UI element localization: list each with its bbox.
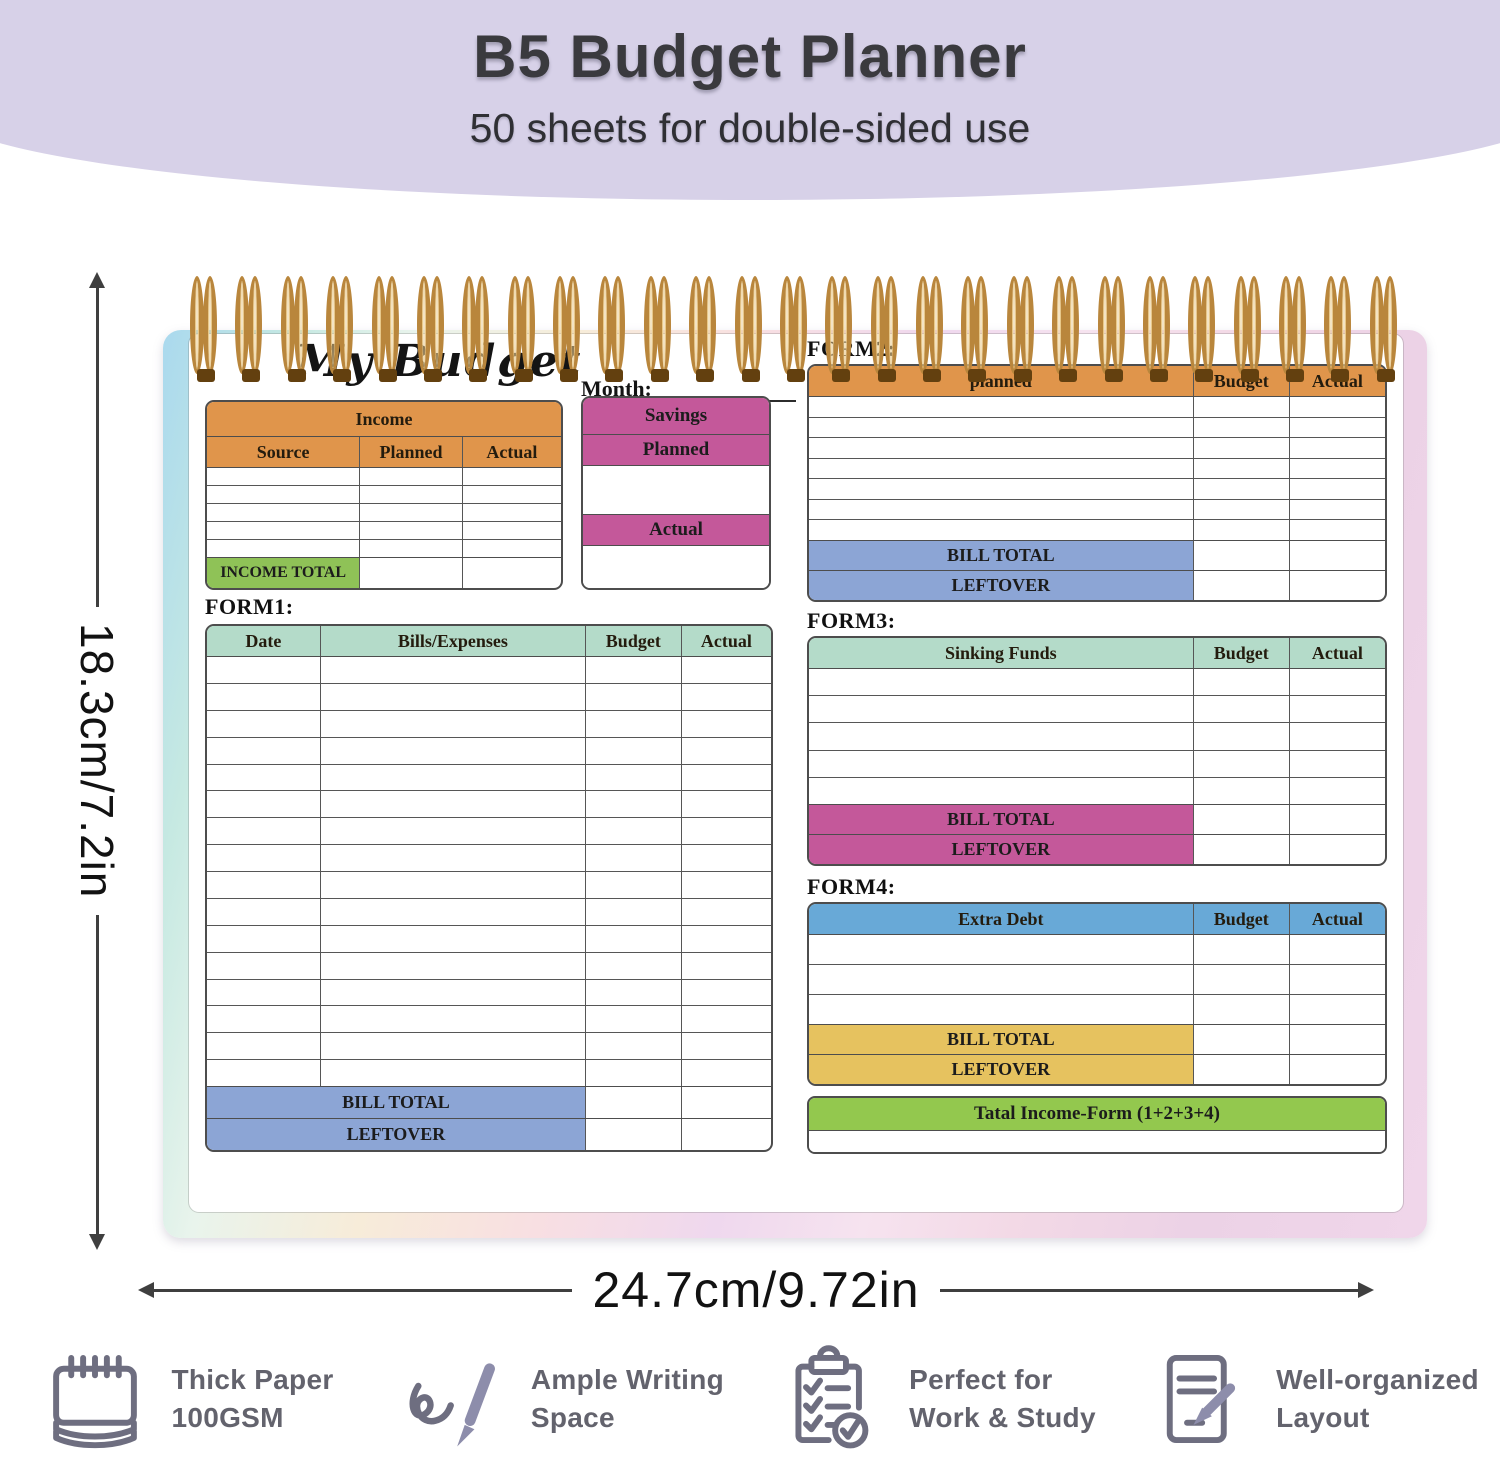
table-cell	[462, 486, 561, 503]
spiral-wire	[735, 276, 749, 374]
table-row	[207, 503, 561, 521]
table-cell	[359, 522, 462, 539]
savings-actual-label: Actual	[583, 514, 769, 545]
table-row	[207, 952, 771, 979]
spiral-ring	[507, 276, 539, 384]
width-dimension: 24.7cm/9.72in	[138, 1258, 1374, 1322]
spiral-wire	[385, 276, 399, 374]
product-image: B5 Budget Planner 50 sheets for double-s…	[0, 0, 1500, 1466]
spiral-wire	[462, 276, 476, 374]
table-cell	[320, 899, 585, 925]
table-cell	[462, 504, 561, 521]
table-row	[207, 764, 771, 791]
table-cell	[1289, 438, 1385, 458]
spiral-ring	[461, 276, 493, 384]
table-cell	[320, 1006, 585, 1032]
table-cell	[1289, 520, 1385, 540]
table-row	[207, 817, 771, 844]
dimension-line	[940, 1289, 1358, 1292]
table-cell	[1289, 965, 1385, 994]
column-header: Actual	[681, 626, 771, 656]
table-cell	[1289, 1025, 1385, 1054]
table-cell	[320, 684, 585, 710]
table-cell	[1193, 571, 1289, 600]
table-cell	[585, 1119, 681, 1150]
spiral-wire	[566, 276, 580, 374]
feature-organized-layout: Well-organized Layout	[1125, 1336, 1500, 1462]
table-cell	[585, 1060, 681, 1086]
table-cell	[320, 926, 585, 952]
spiral-ring	[915, 276, 947, 384]
column-header: Actual	[462, 437, 561, 467]
feature-line: Perfect for	[909, 1361, 1096, 1399]
table-cell	[1289, 835, 1385, 864]
table-cell	[585, 899, 681, 925]
column-header: Budget	[585, 626, 681, 656]
income-table-body	[207, 468, 561, 557]
spiral-wire	[1065, 276, 1079, 374]
grand-total-blank-row	[809, 1131, 1385, 1152]
table-cell	[809, 418, 1193, 438]
spiral-ring	[824, 276, 856, 384]
table-cell	[1193, 805, 1289, 834]
spiral-ring	[280, 276, 312, 384]
table-cell	[809, 438, 1193, 458]
spiral-ring	[1006, 276, 1038, 384]
table-cell	[681, 899, 771, 925]
spiral-wire	[657, 276, 671, 374]
table-row	[207, 683, 771, 710]
spiral-wire	[1234, 276, 1248, 374]
feature-line: Work & Study	[909, 1399, 1096, 1437]
spiral-ring	[1323, 276, 1355, 384]
table-cell	[809, 995, 1193, 1024]
spiral-wire	[1201, 276, 1215, 374]
table-row	[809, 499, 1385, 520]
bill-total-row: BILL TOTAL	[809, 1024, 1385, 1054]
table-cell	[1193, 520, 1289, 540]
table-row	[809, 695, 1385, 722]
income-subheader-row: Source Planned Actual	[207, 437, 561, 468]
spiral-wire	[326, 276, 340, 374]
column-header: Actual	[1289, 638, 1385, 668]
table-cell	[681, 980, 771, 1006]
table-cell	[681, 1119, 771, 1150]
leftover-label: LEFTOVER	[207, 1119, 585, 1150]
spiral-wire	[417, 276, 431, 374]
leftover-row: LEFTOVER	[809, 1054, 1385, 1084]
column-header: Actual	[1289, 904, 1385, 934]
spiral-wire	[1020, 276, 1034, 374]
income-total-row: INCOME TOTAL	[207, 557, 561, 588]
width-dimension-label: 24.7cm/9.72in	[592, 1261, 919, 1319]
table-cell	[1193, 418, 1289, 438]
table-cell	[1289, 479, 1385, 499]
table-cell	[207, 468, 359, 485]
table-cell	[1289, 1055, 1385, 1084]
table-cell	[681, 657, 771, 683]
spiral-wire	[1279, 276, 1293, 374]
table-cell	[207, 818, 320, 844]
document-layout-icon	[1146, 1345, 1254, 1453]
table-cell	[809, 965, 1193, 994]
table-cell	[1193, 1055, 1289, 1084]
feature-strip: Thick Paper 100GSM Ample Writing Space	[0, 1336, 1500, 1462]
form2-table-body	[809, 397, 1385, 540]
table-cell	[320, 657, 585, 683]
spiral-wire	[702, 276, 716, 374]
spiral-ring	[1369, 276, 1401, 384]
feature-label: Ample Writing Space	[531, 1361, 724, 1437]
planner-page: My Budget Month: Income Source Planned A…	[189, 334, 1403, 1212]
savings-header: Savings	[583, 398, 769, 434]
form3-header-row: Sinking Funds Budget Actual	[809, 638, 1385, 669]
arrow-down-icon	[89, 1234, 105, 1250]
table-cell	[320, 953, 585, 979]
table-row	[207, 1032, 771, 1059]
table-cell	[359, 468, 462, 485]
table-cell	[585, 872, 681, 898]
form4-header-row: Extra Debt Budget Actual	[809, 904, 1385, 935]
spiral-wire	[339, 276, 353, 374]
table-cell	[207, 1060, 320, 1086]
spiral-wire	[871, 276, 885, 374]
dimension-line	[154, 1289, 572, 1292]
table-cell	[359, 540, 462, 557]
spiral-wire	[748, 276, 762, 374]
spiral-wire	[1383, 276, 1397, 374]
bill-total-label: BILL TOTAL	[809, 1025, 1193, 1054]
table-cell	[207, 980, 320, 1006]
spiral-ring	[1097, 276, 1129, 384]
spiral-wire	[430, 276, 444, 374]
table-row	[207, 1005, 771, 1032]
spiral-wire	[1098, 276, 1112, 374]
header-banner: B5 Budget Planner 50 sheets for double-s…	[0, 0, 1500, 200]
spiral-wire	[203, 276, 217, 374]
spiral-wire	[281, 276, 295, 374]
spiral-wire	[598, 276, 612, 374]
form4-table-body	[809, 935, 1385, 1024]
table-cell	[585, 1033, 681, 1059]
table-cell	[359, 504, 462, 521]
table-cell	[585, 1087, 681, 1118]
notebook: My Budget Month: Income Source Planned A…	[163, 276, 1427, 1238]
spiral-wire	[825, 276, 839, 374]
table-row	[207, 657, 771, 683]
grand-total-block: Tatal Income-Form (1+2+3+4)	[807, 1096, 1387, 1154]
table-cell	[207, 711, 320, 737]
table-cell	[207, 486, 359, 503]
savings-table: Savings Planned Actual	[581, 396, 771, 590]
spiral-ring	[734, 276, 766, 384]
table-cell	[585, 657, 681, 683]
spiral-ring	[1142, 276, 1174, 384]
table-cell	[1193, 438, 1289, 458]
feature-line: Thick Paper	[171, 1361, 333, 1399]
table-cell	[1289, 500, 1385, 520]
table-cell	[681, 1060, 771, 1086]
table-row	[207, 737, 771, 764]
spiral-ring	[597, 276, 629, 384]
arrow-right-icon	[1358, 1282, 1374, 1298]
table-cell	[462, 540, 561, 557]
table-cell	[207, 872, 320, 898]
table-cell	[462, 522, 561, 539]
column-header: Date	[207, 626, 320, 656]
table-cell	[1193, 835, 1289, 864]
table-cell	[1289, 541, 1385, 570]
table-row	[809, 478, 1385, 499]
spiral-wire	[644, 276, 658, 374]
spiral-wire	[508, 276, 522, 374]
spiral-wire	[475, 276, 489, 374]
table-cell	[207, 1033, 320, 1059]
arrow-left-icon	[138, 1282, 154, 1298]
spiral-ring	[1187, 276, 1219, 384]
spiral-wire	[1292, 276, 1306, 374]
feature-writing-space: Ample Writing Space	[375, 1336, 750, 1462]
form3-label: FORM3:	[807, 608, 896, 634]
height-dimension: 18.3cm/7.2in	[72, 272, 122, 1250]
table-cell	[320, 1060, 585, 1086]
table-cell	[809, 500, 1193, 520]
income-header: Income	[207, 402, 561, 436]
table-cell	[1193, 965, 1289, 994]
spiral-ring	[416, 276, 448, 384]
spiral-ring	[688, 276, 720, 384]
table-cell	[1193, 935, 1289, 964]
clipboard-check-icon	[779, 1345, 887, 1453]
spiral-wire	[929, 276, 943, 374]
dimension-line	[96, 288, 99, 607]
table-cell	[809, 479, 1193, 499]
table-row	[207, 539, 561, 557]
spiral-ring	[779, 276, 811, 384]
table-cell	[681, 684, 771, 710]
spiral-ring	[325, 276, 357, 384]
table-cell	[681, 1033, 771, 1059]
column-header: Planned	[359, 437, 462, 467]
feature-label: Thick Paper 100GSM	[171, 1361, 333, 1437]
spiral-wire	[1188, 276, 1202, 374]
income-header-row: Income	[207, 402, 561, 437]
savings-planned-space	[583, 465, 769, 514]
spiral-ring	[643, 276, 675, 384]
spiral-ring	[234, 276, 266, 384]
table-cell	[462, 558, 561, 588]
savings-actual-space	[583, 545, 769, 588]
spiral-wire	[190, 276, 204, 374]
feature-line: 100GSM	[171, 1399, 333, 1437]
table-cell	[809, 669, 1193, 695]
page-subtitle: 50 sheets for double-sided use	[0, 105, 1500, 152]
spiral-binding	[189, 276, 1401, 386]
spiral-ring	[960, 276, 992, 384]
form2-table: planned Budget Actual BILL TOTAL LEFTOVE…	[807, 364, 1387, 602]
leftover-row: LEFTOVER	[809, 834, 1385, 864]
table-cell	[1193, 479, 1289, 499]
table-row	[207, 1059, 771, 1086]
table-row	[809, 397, 1385, 417]
table-cell	[809, 778, 1193, 804]
table-cell	[320, 872, 585, 898]
table-cell	[585, 684, 681, 710]
leftover-row: LEFTOVER	[809, 570, 1385, 600]
table-cell	[1193, 723, 1289, 749]
table-cell	[585, 711, 681, 737]
spiral-wire	[1143, 276, 1157, 374]
spiral-wire	[248, 276, 262, 374]
table-row	[809, 750, 1385, 777]
table-cell	[681, 738, 771, 764]
grand-total-label: Tatal Income-Form (1+2+3+4)	[809, 1098, 1385, 1131]
table-cell	[681, 765, 771, 791]
table-cell	[1289, 805, 1385, 834]
table-row	[207, 979, 771, 1006]
table-row	[809, 458, 1385, 479]
table-row	[809, 437, 1385, 458]
table-cell	[207, 953, 320, 979]
savings-planned-label: Planned	[583, 434, 769, 465]
spiral-wire	[780, 276, 794, 374]
spiral-wire	[916, 276, 930, 374]
feature-line: Layout	[1276, 1399, 1479, 1437]
form3-table-body	[809, 669, 1385, 804]
table-cell	[1289, 778, 1385, 804]
spiral-wire	[1007, 276, 1021, 374]
form1-header-row: Date Bills/Expenses Budget Actual	[207, 626, 771, 657]
table-row	[809, 669, 1385, 695]
table-row	[809, 722, 1385, 749]
feature-label: Well-organized Layout	[1276, 1361, 1479, 1437]
form4-table: Extra Debt Budget Actual BILL TOTAL LEFT…	[807, 902, 1387, 1086]
table-cell	[1289, 696, 1385, 722]
table-cell	[1193, 995, 1289, 1024]
column-header: Sinking Funds	[809, 638, 1193, 668]
table-cell	[207, 1006, 320, 1032]
table-cell	[462, 468, 561, 485]
bill-total-row: BILL TOTAL	[207, 1086, 771, 1118]
table-row	[809, 935, 1385, 964]
spiral-wire	[1156, 276, 1170, 374]
table-cell	[1193, 541, 1289, 570]
form4-label: FORM4:	[807, 874, 896, 900]
table-cell	[809, 751, 1193, 777]
spiral-ring	[552, 276, 584, 384]
table-cell	[207, 657, 320, 683]
table-cell	[1193, 459, 1289, 479]
spiral-wire	[793, 276, 807, 374]
table-cell	[207, 540, 359, 557]
dimension-line	[96, 915, 99, 1234]
table-cell	[809, 520, 1193, 540]
table-cell	[320, 845, 585, 871]
spiral-ring	[1051, 276, 1083, 384]
table-cell	[1289, 723, 1385, 749]
table-cell	[809, 397, 1193, 417]
table-cell	[1193, 696, 1289, 722]
spiral-wire	[611, 276, 625, 374]
spiral-wire	[235, 276, 249, 374]
pen-writing-icon	[401, 1345, 509, 1453]
table-cell	[681, 872, 771, 898]
spiral-wire	[1111, 276, 1125, 374]
table-row	[809, 777, 1385, 804]
table-cell	[585, 926, 681, 952]
table-cell	[681, 791, 771, 817]
table-cell	[681, 926, 771, 952]
spiral-ring	[189, 276, 221, 384]
table-cell	[809, 696, 1193, 722]
table-cell	[681, 711, 771, 737]
column-header: Bills/Expenses	[320, 626, 585, 656]
table-cell	[320, 1033, 585, 1059]
spiral-wire	[974, 276, 988, 374]
table-row	[809, 994, 1385, 1024]
table-cell	[1193, 669, 1289, 695]
table-cell	[207, 684, 320, 710]
form1-table: Date Bills/Expenses Budget Actual BILL T…	[205, 624, 773, 1152]
height-dimension-label: 18.3cm/7.2in	[70, 623, 124, 898]
leftover-label: LEFTOVER	[809, 1055, 1193, 1084]
table-cell	[1193, 397, 1289, 417]
table-cell	[681, 818, 771, 844]
table-cell	[585, 791, 681, 817]
table-cell	[1289, 397, 1385, 417]
leftover-row: LEFTOVER	[207, 1118, 771, 1150]
arrow-up-icon	[89, 272, 105, 288]
table-cell	[585, 765, 681, 791]
table-cell	[207, 791, 320, 817]
table-row	[207, 790, 771, 817]
table-cell	[1289, 995, 1385, 1024]
table-cell	[207, 926, 320, 952]
table-row	[207, 485, 561, 503]
column-header: Budget	[1193, 638, 1289, 668]
feature-thick-paper: Thick Paper 100GSM	[0, 1336, 375, 1462]
spiral-wire	[689, 276, 703, 374]
table-cell	[585, 953, 681, 979]
spiral-ring	[371, 276, 403, 384]
table-row	[207, 710, 771, 737]
feature-label: Perfect for Work & Study	[909, 1361, 1096, 1437]
leftover-label: LEFTOVER	[809, 835, 1193, 864]
spiral-wire	[521, 276, 535, 374]
income-total-label: INCOME TOTAL	[207, 558, 359, 588]
table-row	[207, 521, 561, 539]
table-cell	[359, 486, 462, 503]
feature-line: Space	[531, 1399, 724, 1437]
bill-total-label: BILL TOTAL	[809, 805, 1193, 834]
table-row	[207, 468, 561, 485]
spiral-wire	[1370, 276, 1384, 374]
table-cell	[1193, 751, 1289, 777]
table-row	[207, 925, 771, 952]
column-header: Extra Debt	[809, 904, 1193, 934]
table-cell	[809, 935, 1193, 964]
page-title: B5 Budget Planner	[0, 0, 1500, 91]
table-cell	[1289, 571, 1385, 600]
spiral-wire	[1324, 276, 1338, 374]
table-cell	[320, 738, 585, 764]
table-cell	[1289, 669, 1385, 695]
spiral-wire	[372, 276, 386, 374]
feature-work-study: Perfect for Work & Study	[750, 1336, 1125, 1462]
table-cell	[585, 738, 681, 764]
form3-table: Sinking Funds Budget Actual BILL TOTAL L…	[807, 636, 1387, 866]
table-row	[207, 871, 771, 898]
